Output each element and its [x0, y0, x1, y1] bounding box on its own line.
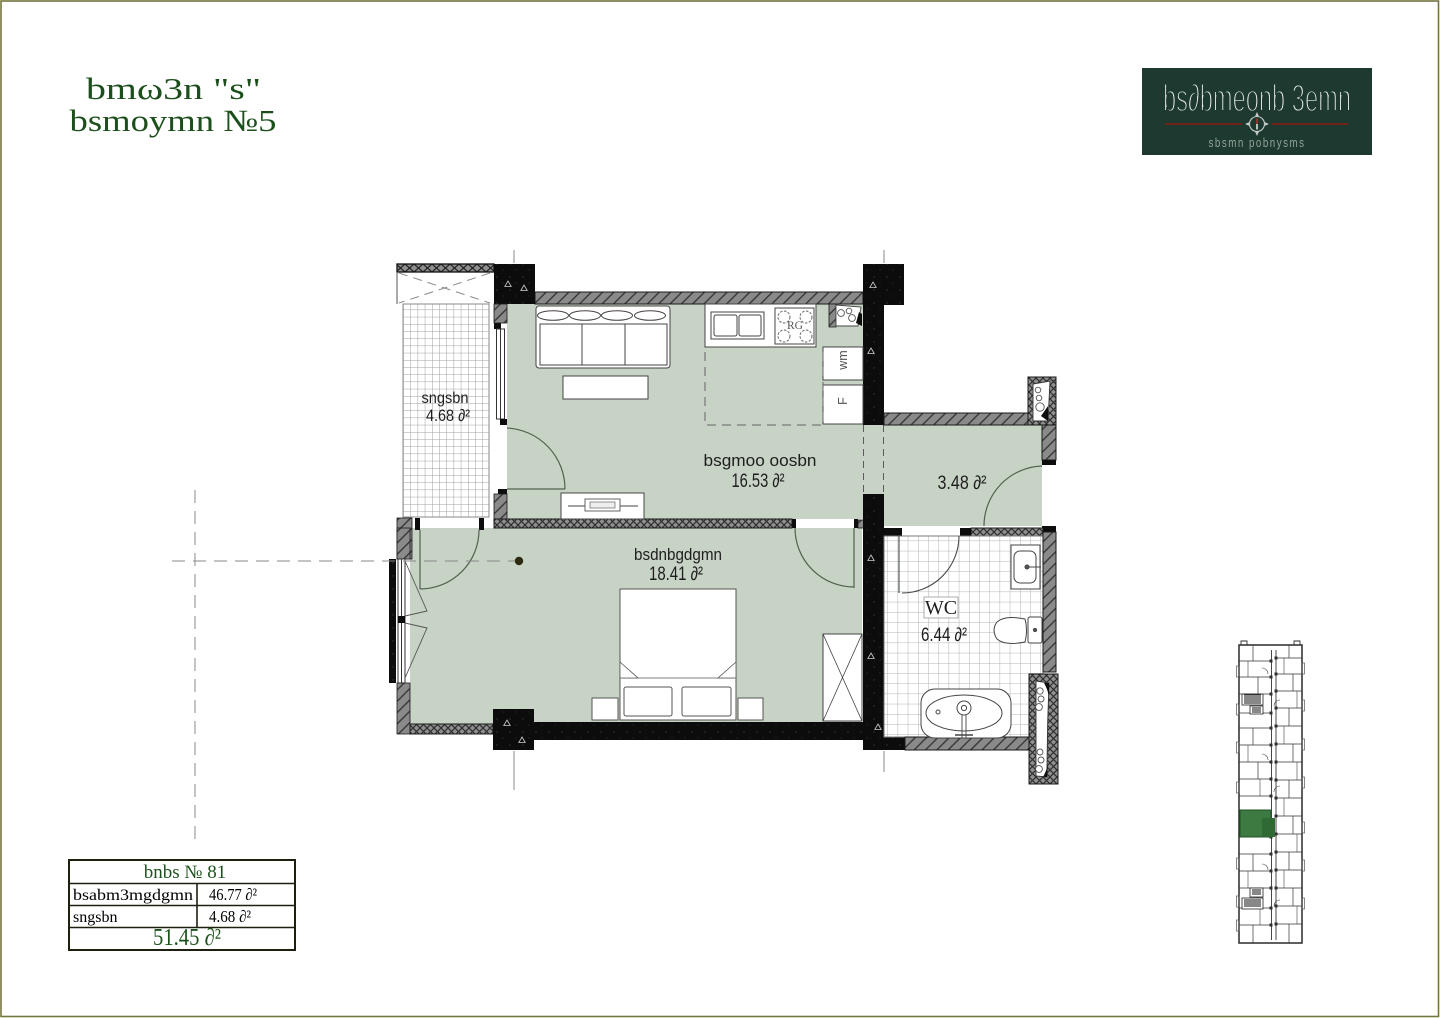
svg-text:bmω3n "s": bmω3n "s" [86, 71, 261, 106]
svg-text:bsmoуmn №5: bsmoуmn №5 [70, 103, 277, 138]
svg-text:51.45 ∂²: 51.45 ∂² [153, 925, 221, 951]
svg-text:sbsmn pobnysms: sbsmn pobnysms [1209, 135, 1306, 150]
svg-text:6.44 ∂²: 6.44 ∂² [921, 625, 967, 646]
svg-text:RG: RG [787, 320, 803, 332]
svg-text:bnbs № 81: bnbs № 81 [144, 862, 227, 883]
svg-text:18.41 ∂²: 18.41 ∂² [649, 564, 703, 585]
svg-text:wm: wm [836, 350, 850, 370]
svg-text:bsdnbgdgmn: bsdnbgdgmn [634, 546, 722, 564]
svg-text:4.68 ∂²: 4.68 ∂² [209, 907, 251, 926]
svg-text:4.68 ∂²: 4.68 ∂² [426, 406, 470, 425]
svg-text:46.77 ∂²: 46.77 ∂² [209, 885, 257, 904]
svg-text:3.48 ∂²: 3.48 ∂² [938, 473, 987, 494]
svg-text:F: F [836, 397, 850, 405]
svg-text:WC: WC [925, 597, 957, 619]
svg-text:16.53 ∂²: 16.53 ∂² [732, 471, 785, 492]
svg-text:bsgmoo oosbn: bsgmoo oosbn [704, 452, 817, 470]
svg-text:bsabm3mgdgmn: bsabm3mgdgmn [73, 887, 193, 904]
svg-text:sngsbn: sngsbn [73, 909, 117, 926]
svg-text:sngsbn: sngsbn [422, 390, 469, 407]
